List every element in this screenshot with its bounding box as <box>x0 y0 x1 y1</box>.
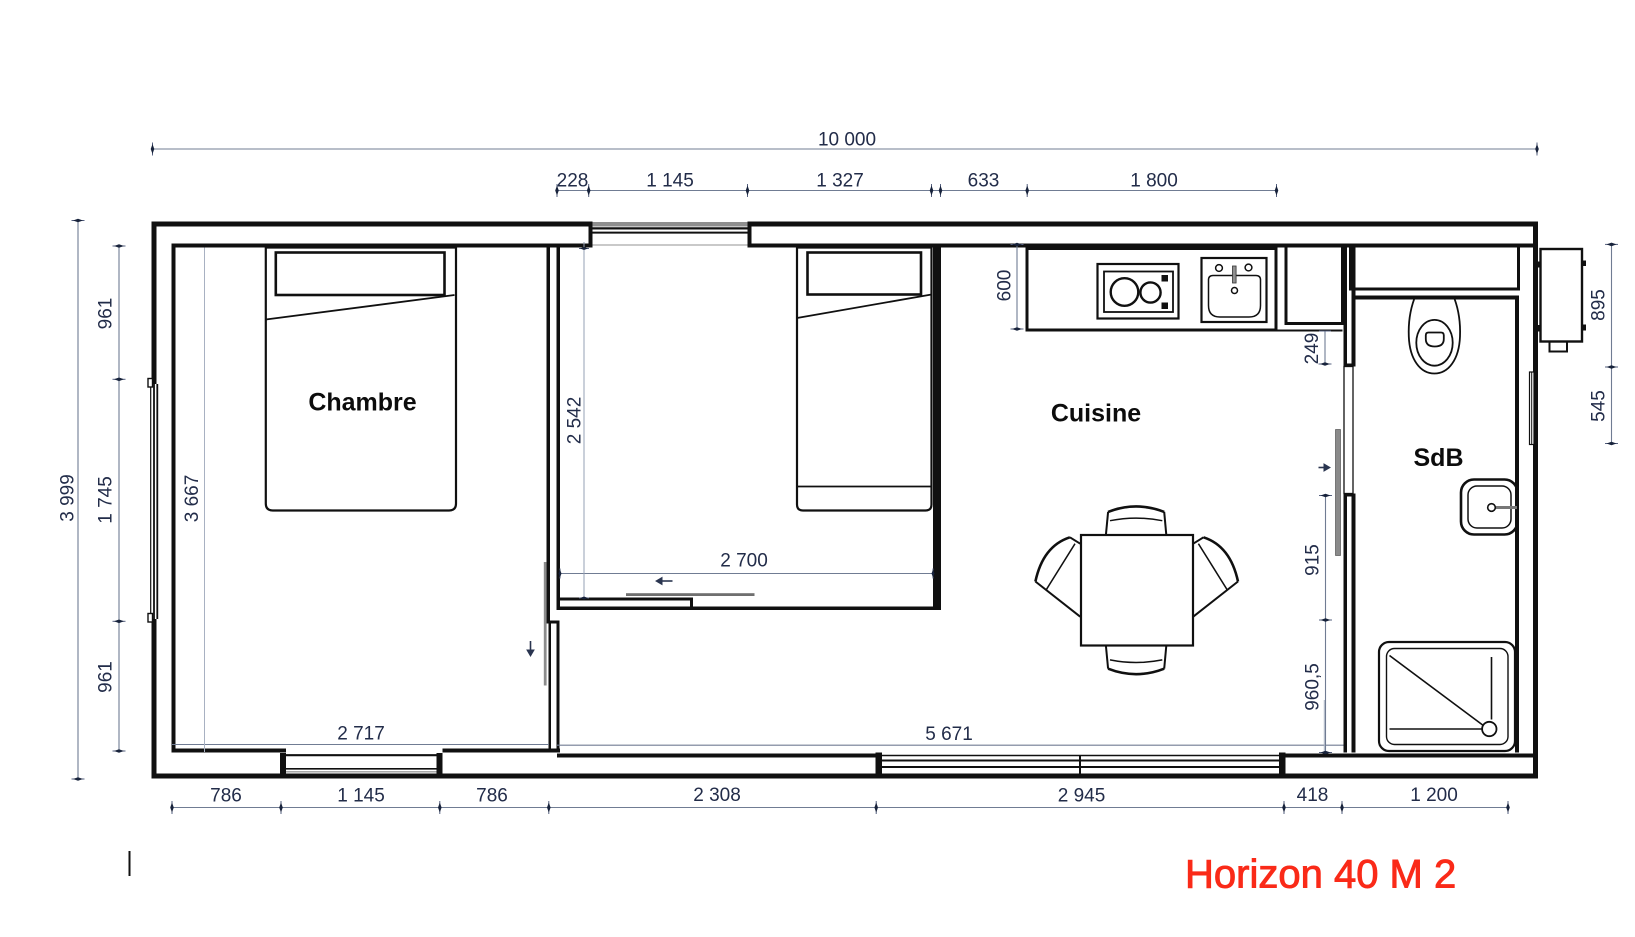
svg-text:1 145: 1 145 <box>337 786 385 807</box>
svg-text:249: 249 <box>1302 333 1323 365</box>
svg-text:Cuisine: Cuisine <box>1051 400 1141 428</box>
svg-text:1 800: 1 800 <box>1130 171 1178 192</box>
svg-text:2 945: 2 945 <box>1058 786 1106 807</box>
svg-text:Horizon 40 M 2: Horizon 40 M 2 <box>1185 853 1456 897</box>
svg-text:600: 600 <box>995 270 1016 302</box>
svg-text:5 671: 5 671 <box>925 724 973 745</box>
svg-text:2 717: 2 717 <box>337 724 385 745</box>
svg-text:786: 786 <box>476 786 508 807</box>
svg-text:418: 418 <box>1297 785 1329 806</box>
svg-text:10 000: 10 000 <box>818 130 876 151</box>
svg-text:1 327: 1 327 <box>816 171 864 192</box>
svg-text:2 700: 2 700 <box>720 551 768 572</box>
svg-text:1 200: 1 200 <box>1410 785 1458 806</box>
svg-text:1 145: 1 145 <box>646 171 694 192</box>
svg-text:Chambre: Chambre <box>308 389 416 417</box>
svg-text:3 667: 3 667 <box>182 475 203 523</box>
svg-text:1 745: 1 745 <box>96 476 117 524</box>
svg-text:895: 895 <box>1589 289 1610 321</box>
svg-text:2 542: 2 542 <box>565 397 586 445</box>
svg-text:961: 961 <box>96 661 117 693</box>
svg-text:2 308: 2 308 <box>693 785 741 806</box>
svg-text:633: 633 <box>968 171 1000 192</box>
svg-text:786: 786 <box>210 786 242 807</box>
svg-text:961: 961 <box>96 298 117 330</box>
svg-text:SdB: SdB <box>1414 444 1464 472</box>
svg-text:3 999: 3 999 <box>58 474 79 522</box>
svg-text:915: 915 <box>1303 544 1324 576</box>
svg-text:545: 545 <box>1589 390 1610 422</box>
svg-text:228: 228 <box>557 171 589 192</box>
svg-text:960,5: 960,5 <box>1303 663 1324 711</box>
